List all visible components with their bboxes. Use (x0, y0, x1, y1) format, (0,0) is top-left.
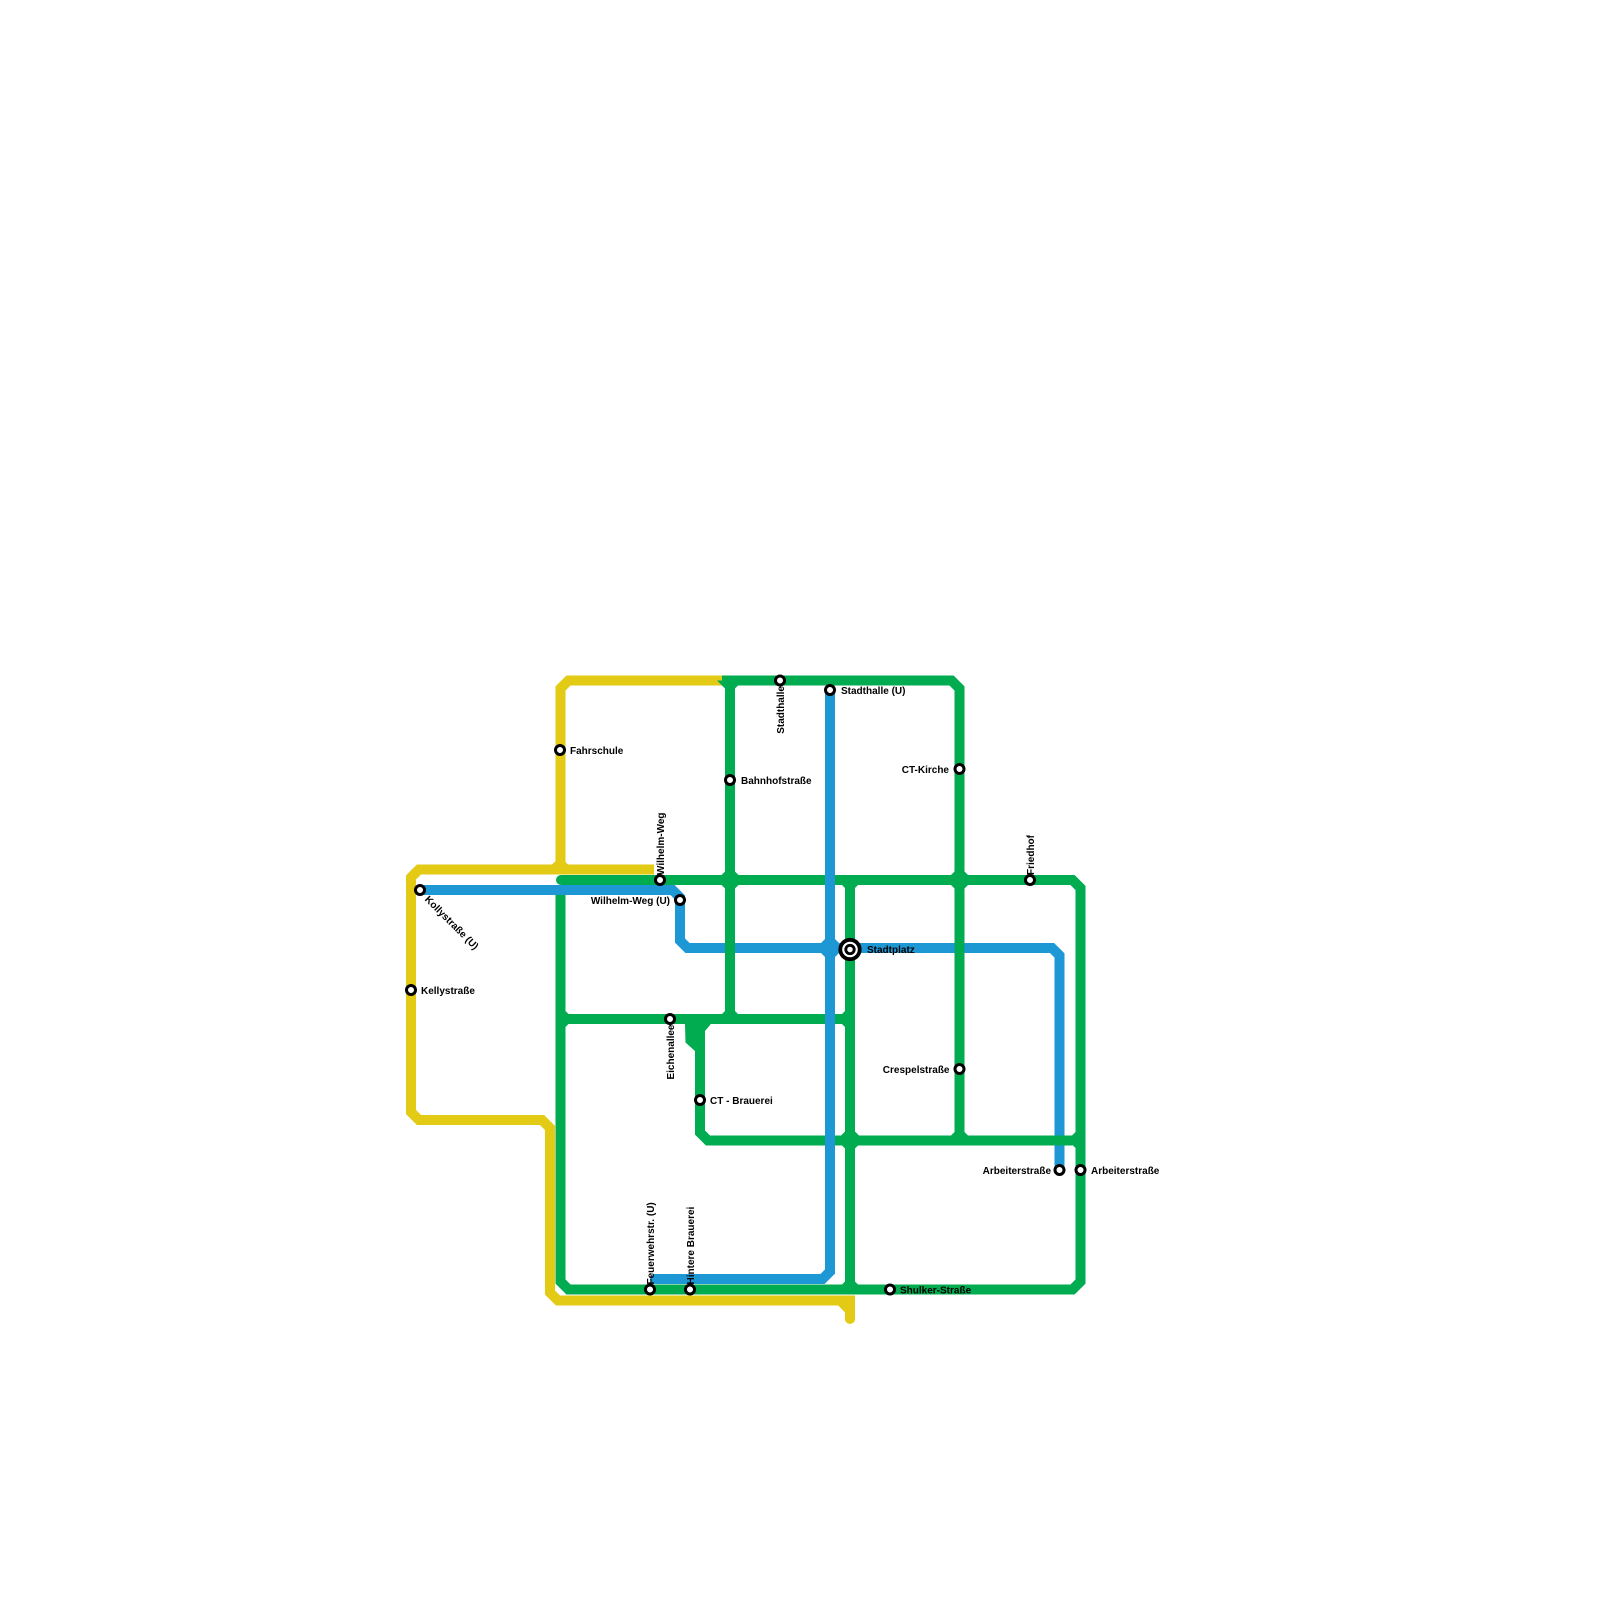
svg-text:CT - Brauerei: CT - Brauerei (710, 1096, 773, 1107)
svg-text:Arbeiterstraße: Arbeiterstraße (1091, 1166, 1160, 1177)
svg-text:Stadtplatz: Stadtplatz (867, 945, 915, 956)
svg-text:Shulker-Straße: Shulker-Straße (900, 1286, 972, 1297)
svg-text:Crespelstraße: Crespelstraße (883, 1065, 950, 1076)
svg-text:Bahnhofstraße: Bahnhofstraße (741, 776, 812, 787)
svg-text:Friedhof: Friedhof (1026, 834, 1037, 875)
svg-text:Arbeiterstraße: Arbeiterstraße (983, 1166, 1052, 1177)
svg-text:Wilhelm-Weg: Wilhelm-Weg (656, 812, 667, 875)
svg-text:Stadthalle (U): Stadthalle (U) (841, 686, 905, 697)
svg-text:Eichenallee: Eichenallee (666, 1024, 677, 1079)
svg-text:Feuerwehrstr. (U): Feuerwehrstr. (U) (646, 1202, 657, 1284)
svg-text:Fahrschule: Fahrschule (570, 746, 624, 757)
svg-text:Stadthalle: Stadthalle (776, 686, 787, 734)
svg-text:Wilhelm-Weg (U): Wilhelm-Weg (U) (591, 896, 670, 907)
svg-text:Hintere Brauerei: Hintere Brauerei (686, 1206, 697, 1284)
svg-text:Kellystraße: Kellystraße (421, 986, 475, 997)
svg-text:CT-Kirche: CT-Kirche (902, 765, 950, 776)
